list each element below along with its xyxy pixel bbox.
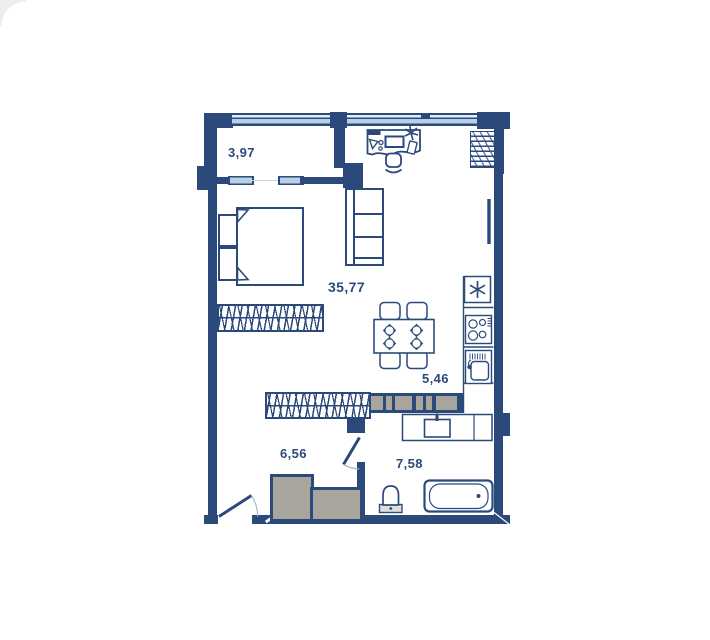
phone-icon [407, 141, 417, 154]
stove-icon [466, 316, 492, 344]
wardrobe-hallway [265, 392, 371, 419]
wall-balcony-bottom-b [300, 177, 344, 184]
room-label-bathroom: 7,58 [396, 456, 423, 471]
speaker-icon [379, 141, 383, 145]
window-mullion [421, 114, 430, 119]
chair [380, 303, 400, 320]
wall-bottom-left-stub [204, 515, 218, 524]
desk-chair [386, 154, 401, 168]
wall-balcony-right [334, 126, 345, 168]
monitor-icon [386, 137, 404, 148]
bathroom-door-leaf [344, 438, 360, 465]
room-label-living: 35,77 [328, 279, 365, 295]
fridge-snowflake-icon [470, 281, 485, 298]
dining-set [374, 303, 434, 369]
speaker-icon [379, 147, 382, 150]
plan-details [0, 0, 710, 640]
cabinet-block [426, 396, 432, 410]
wall-kitchen-bar [367, 393, 463, 413]
cabinet-block [371, 396, 383, 410]
chair [407, 352, 427, 369]
chair [407, 303, 427, 320]
room-label-balcony: 3,97 [228, 145, 255, 160]
bed [236, 207, 304, 286]
bathtub [425, 481, 493, 512]
vanity-counter [403, 415, 493, 441]
wall-top-right-corner [477, 112, 510, 129]
wall-right-upper [494, 128, 504, 174]
fridge [465, 277, 491, 303]
shelving-unit [470, 131, 495, 168]
wall-right-lower [494, 436, 503, 517]
room-label-kitchen: 5,46 [422, 371, 449, 386]
page-corner-shade [0, 0, 26, 26]
wall-right-pilaster [494, 413, 510, 436]
cabinet-block [395, 396, 412, 410]
washbasin [425, 420, 451, 438]
sofa-cushion-divider [353, 213, 382, 215]
desk-shelf [368, 130, 381, 136]
dining-table [374, 320, 434, 354]
cabinet-block [386, 396, 392, 410]
wall-living-pillar [343, 163, 363, 188]
window-living [347, 113, 477, 126]
desk-workplace [368, 126, 421, 173]
desk-chair-base [386, 170, 402, 173]
wall-left [208, 183, 217, 524]
entrance-door-swing [252, 496, 258, 517]
cabinet-block [416, 396, 423, 410]
place-settings [384, 325, 423, 350]
sofa-cushion-divider [353, 236, 382, 238]
toilet [380, 486, 403, 513]
window-balcony [232, 113, 330, 126]
floor-plan: 3,97 35,77 5,46 6,56 7,58 [0, 0, 710, 640]
wardrobe-living [217, 304, 324, 332]
hall-cabinet [310, 487, 363, 522]
kitchen-counter [463, 276, 494, 413]
plant-icon [405, 126, 418, 140]
kitchen-sink-icon [466, 351, 492, 384]
sofa-armrest [353, 257, 382, 259]
wall-right-mid [494, 174, 503, 414]
desk [368, 130, 421, 155]
entrance-door-leaf [219, 496, 252, 517]
cabinet-block [436, 396, 457, 410]
washbasin-tap [436, 414, 439, 422]
room-label-hallway: 6,56 [280, 446, 307, 461]
chair [380, 352, 400, 369]
sofa [345, 188, 384, 266]
sofa-backrest [353, 190, 355, 264]
sliding-door-leaf [487, 199, 490, 244]
lamp-icon [370, 140, 379, 149]
balcony-door-opening [250, 180, 278, 182]
hall-cabinet [270, 474, 314, 522]
